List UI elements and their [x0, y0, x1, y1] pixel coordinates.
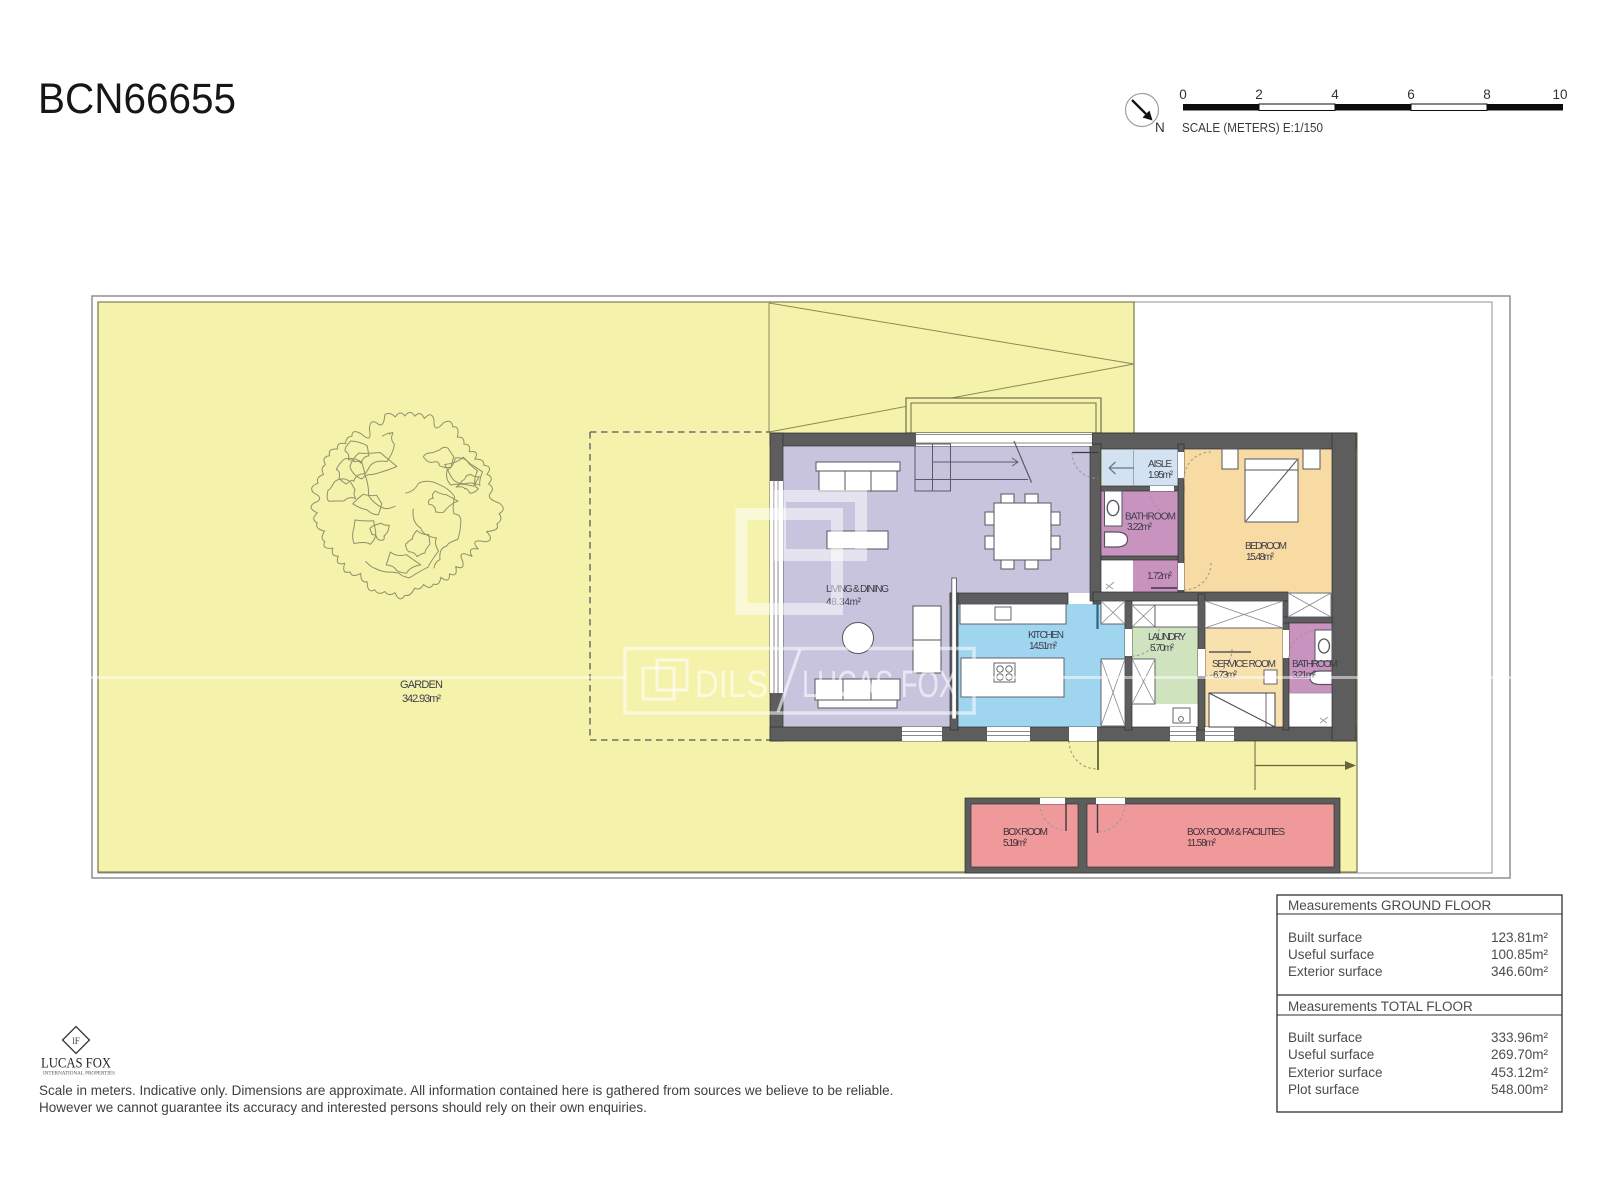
svg-text:269.70m²: 269.70m²	[1491, 1047, 1549, 1062]
svg-text:AISLE: AISLE	[1148, 459, 1172, 470]
svg-text:5.19m²: 5.19m²	[1003, 838, 1028, 849]
svg-text:123.81m²: 123.81m²	[1491, 930, 1549, 945]
svg-text:Exterior surface: Exterior surface	[1288, 1065, 1383, 1080]
svg-text:INTERNATIONAL PROPERTIES: INTERNATIONAL PROPERTIES	[43, 1072, 115, 1077]
svg-text:3.22m²: 3.22m²	[1127, 522, 1153, 533]
svg-text:10: 10	[1552, 87, 1567, 102]
svg-text:BEDROOM: BEDROOM	[1245, 541, 1287, 552]
svg-text:Exterior surface: Exterior surface	[1288, 964, 1383, 979]
svg-text:1.95m²: 1.95m²	[1148, 470, 1174, 481]
svg-text:0: 0	[1179, 87, 1187, 102]
svg-text:342.93m²: 342.93m²	[402, 693, 441, 705]
svg-text:lF: lF	[72, 1036, 80, 1046]
svg-text:LUCAS FOX: LUCAS FOX	[802, 664, 957, 706]
svg-text:2: 2	[1255, 87, 1263, 102]
svg-text:Measurements GROUND FLOOR: Measurements GROUND FLOOR	[1288, 898, 1492, 913]
svg-text:Measurements TOTAL FLOOR: Measurements TOTAL FLOOR	[1288, 999, 1473, 1014]
svg-text:BATHROOM: BATHROOM	[1292, 659, 1338, 670]
svg-text:Plot surface: Plot surface	[1288, 1082, 1359, 1097]
svg-text:100.85m²: 100.85m²	[1491, 947, 1549, 962]
svg-text:346.60m²: 346.60m²	[1491, 964, 1549, 979]
svg-text:5.70m²: 5.70m²	[1150, 643, 1175, 654]
svg-text:However we cannot guarantee it: However we cannot guarantee its accuracy…	[39, 1100, 647, 1115]
svg-text:1.72m²: 1.72m²	[1147, 571, 1173, 582]
svg-text:BOX ROOM: BOX ROOM	[1003, 827, 1048, 838]
svg-text:6.73m²: 6.73m²	[1213, 670, 1238, 681]
svg-text:Scale in meters. Indicative on: Scale in meters. Indicative only. Dimens…	[39, 1083, 893, 1098]
svg-text:DILS: DILS	[695, 664, 768, 706]
svg-text:453.12m²: 453.12m²	[1491, 1065, 1549, 1080]
svg-text:BCN66655: BCN66655	[38, 76, 236, 123]
svg-text:Useful surface: Useful surface	[1288, 1047, 1374, 1062]
svg-text:8: 8	[1483, 87, 1491, 102]
svg-text:11.58m²: 11.58m²	[1187, 838, 1217, 849]
svg-text:Built surface: Built surface	[1288, 1030, 1362, 1045]
svg-text:BATHROOM: BATHROOM	[1125, 512, 1176, 523]
svg-text:LAUNDRY: LAUNDRY	[1148, 632, 1186, 643]
svg-text:BOX ROOM & FACILITIES: BOX ROOM & FACILITIES	[1187, 827, 1285, 838]
svg-text:3.21m²: 3.21m²	[1292, 670, 1317, 681]
svg-text:SERVICE ROOM: SERVICE ROOM	[1212, 659, 1276, 670]
svg-text:548.00m²: 548.00m²	[1491, 1082, 1549, 1097]
svg-text:Useful surface: Useful surface	[1288, 947, 1374, 962]
svg-text:333.96m²: 333.96m²	[1491, 1030, 1549, 1045]
svg-text:KITCHEN: KITCHEN	[1028, 630, 1064, 641]
svg-text:6: 6	[1407, 87, 1415, 102]
svg-text:N: N	[1155, 120, 1165, 135]
svg-text:Built surface: Built surface	[1288, 930, 1362, 945]
svg-text:GARDEN: GARDEN	[400, 679, 443, 691]
svg-text:LUCAS FOX: LUCAS FOX	[41, 1056, 111, 1072]
svg-text:4: 4	[1331, 87, 1339, 102]
svg-text:SCALE (METERS) E:1/150: SCALE (METERS) E:1/150	[1182, 120, 1323, 135]
svg-text:15.48m²: 15.48m²	[1246, 552, 1275, 563]
svg-text:14.51m²: 14.51m²	[1029, 641, 1058, 652]
